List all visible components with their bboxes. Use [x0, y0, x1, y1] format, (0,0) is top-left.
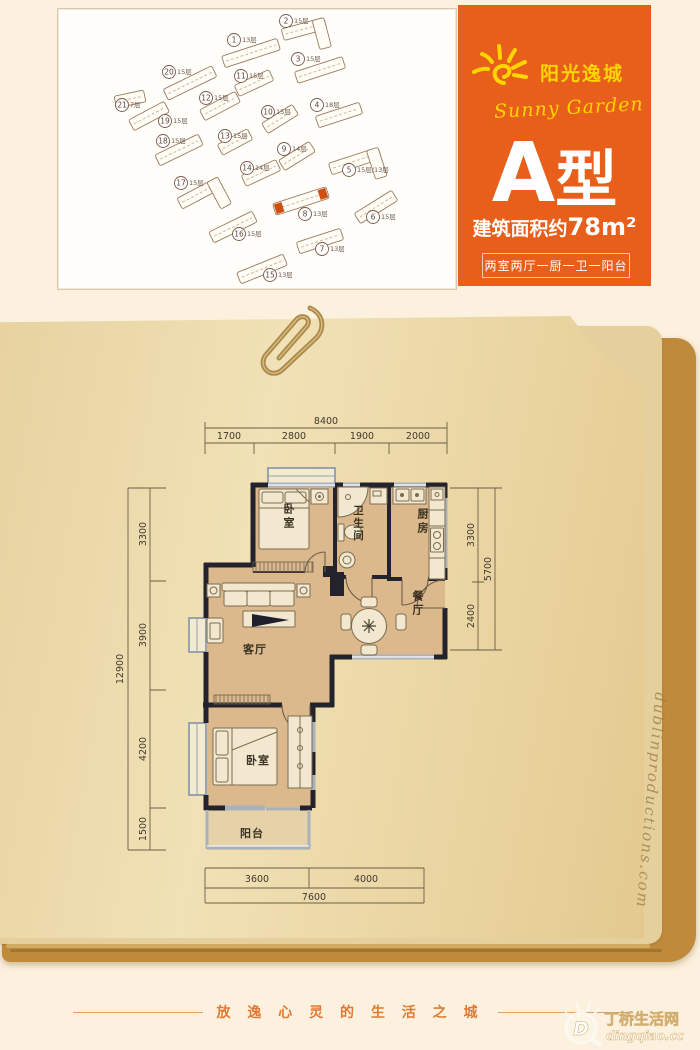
svg-text:15层: 15层 — [233, 132, 248, 140]
svg-text:17: 17 — [176, 179, 186, 188]
svg-text:15层: 15层 — [214, 94, 229, 102]
svg-text:4: 4 — [315, 101, 320, 110]
dingqiao-logo-letter: D — [573, 1018, 589, 1040]
slogan-rule-left — [73, 1012, 203, 1013]
brand-panel: 阳光逸城 Sunny Garden A型 建筑面积约78m² 两室两厅一厨一卫一… — [458, 5, 651, 286]
svg-text:19: 19 — [160, 117, 170, 126]
svg-text:13: 13 — [220, 132, 230, 141]
svg-text:3: 3 — [296, 55, 301, 64]
svg-text:9: 9 — [282, 145, 287, 154]
building-16 — [209, 211, 257, 243]
svg-text:13层: 13层 — [278, 271, 293, 279]
unit-area-value: 78m² — [568, 213, 637, 241]
svg-text:15层: 15层 — [247, 230, 262, 238]
svg-text:20: 20 — [164, 68, 174, 77]
svg-text:16: 16 — [234, 230, 244, 239]
svg-text:14层: 14层 — [292, 145, 307, 153]
slogan-text: 放 逸 心 灵 的 生 活 之 城 — [217, 1002, 484, 1022]
building-label-19: 1915层 — [159, 115, 189, 128]
room-label-bedroom-top: 卧室 — [280, 503, 296, 531]
building-label-6: 615层 — [367, 211, 397, 224]
dim-top-4: 2000 — [406, 431, 430, 442]
svg-text:5: 5 — [347, 166, 352, 175]
cabinet-strip — [214, 695, 270, 704]
building-label-8: 813层 — [299, 208, 329, 221]
paperclip-icon — [252, 298, 336, 410]
dim-right-2: 2400 — [466, 604, 477, 628]
siteplan-panel: 113层215层315层418层515层/13层615层713层813层914层… — [57, 8, 457, 290]
brand-logo: 阳光逸城 Sunny Garden — [468, 41, 644, 97]
svg-text:12: 12 — [201, 94, 211, 103]
dingqiao-watermark: D 丁桥生活网 dingqiao.cc — [560, 999, 700, 1049]
svg-text:7层: 7层 — [130, 101, 141, 109]
floorplan: 8400 1700 2800 1900 2000 12900 3300 3900… — [110, 390, 570, 954]
svg-text:2: 2 — [284, 17, 289, 26]
room-label-living: 客厅 — [243, 641, 267, 657]
svg-text:15层/13层: 15层/13层 — [357, 166, 389, 174]
room-label-dining: 餐厅 — [409, 590, 425, 618]
building-label-1: 113层 — [228, 34, 258, 47]
unit-type: A型 — [458, 133, 651, 215]
dim-left-3: 4200 — [138, 737, 149, 761]
svg-text:10: 10 — [263, 108, 273, 117]
building-label-7: 713层 — [316, 243, 346, 256]
svg-text:15层: 15层 — [177, 68, 192, 76]
dim-left-4: 1500 — [138, 817, 149, 841]
dim-top-2: 2800 — [282, 431, 306, 442]
svg-text:14: 14 — [242, 164, 252, 173]
floor-area — [205, 485, 445, 850]
unit-type-letter: A — [492, 126, 555, 221]
svg-text:15层: 15层 — [294, 17, 309, 25]
dim-right-total: 5700 — [483, 557, 494, 581]
dim-top-total: 8400 — [314, 416, 338, 427]
dim-bottom-2: 4000 — [354, 874, 378, 885]
svg-text:15层: 15层 — [173, 117, 188, 125]
room-label-kitchen: 厨房 — [414, 508, 430, 536]
unit-type-suffix: 型 — [555, 143, 617, 216]
sun-logo-icon — [468, 41, 530, 99]
svg-text:6: 6 — [371, 213, 376, 222]
unit-area: 建筑面积约78m² — [458, 213, 651, 241]
svg-text:15层: 15层 — [306, 55, 321, 63]
svg-text:15层: 15层 — [249, 72, 264, 80]
svg-text:15层: 15层 — [276, 108, 291, 116]
room-label-bathroom: 卫生间 — [351, 505, 366, 543]
unit-layout-desc: 两室两厅一厨一卫一阳台 — [482, 253, 630, 278]
svg-text:11: 11 — [236, 72, 246, 81]
dingqiao-site-cn: 丁桥生活网 — [604, 1010, 679, 1028]
dim-left-1: 3300 — [138, 522, 149, 546]
svg-text:21: 21 — [117, 101, 127, 110]
dim-left-total: 12900 — [115, 654, 126, 684]
wardrobe-strip — [253, 562, 313, 572]
siteplan-drawing: 113层215层315层418层515层/13层615层713层813层914层… — [58, 9, 456, 289]
svg-text:8: 8 — [303, 210, 308, 219]
svg-text:18层: 18层 — [325, 101, 340, 109]
dim-top-1: 1700 — [217, 431, 241, 442]
svg-text:15层: 15层 — [189, 179, 204, 187]
page: 113层215层315层418层515层/13层615层713层813层914层… — [0, 0, 700, 1050]
brand-name-cn: 阳光逸城 — [540, 59, 624, 86]
dim-top-3: 1900 — [350, 431, 374, 442]
svg-text:13层: 13层 — [242, 36, 257, 44]
room-label-bedroom-bottom: 卧室 — [246, 752, 270, 768]
building-label-15: 1513层 — [264, 269, 294, 282]
svg-text:1: 1 — [232, 36, 237, 45]
svg-text:13层: 13层 — [313, 210, 328, 218]
svg-text:15层: 15层 — [381, 213, 396, 221]
svg-text:7: 7 — [320, 245, 325, 254]
building-15 — [237, 254, 288, 284]
room-label-balcony: 阳台 — [240, 825, 264, 841]
unit-area-prefix: 建筑面积约 — [473, 218, 568, 240]
svg-text:15: 15 — [265, 271, 275, 280]
building-label-20: 2015层 — [163, 66, 193, 79]
dingqiao-site-en: dingqiao.cc — [606, 1029, 684, 1043]
dim-left-2: 3900 — [138, 623, 149, 647]
svg-text:18: 18 — [158, 137, 168, 146]
svg-text:14层: 14层 — [255, 164, 270, 172]
dim-bottom-1: 3600 — [245, 874, 269, 885]
dim-right-1: 3300 — [466, 523, 477, 547]
svg-text:13层: 13层 — [330, 245, 345, 253]
building-label-16: 1615层 — [233, 228, 263, 241]
dim-bottom-total: 7600 — [302, 892, 326, 903]
building-label-3: 315层 — [292, 53, 322, 66]
svg-text:15层: 15层 — [171, 137, 186, 145]
